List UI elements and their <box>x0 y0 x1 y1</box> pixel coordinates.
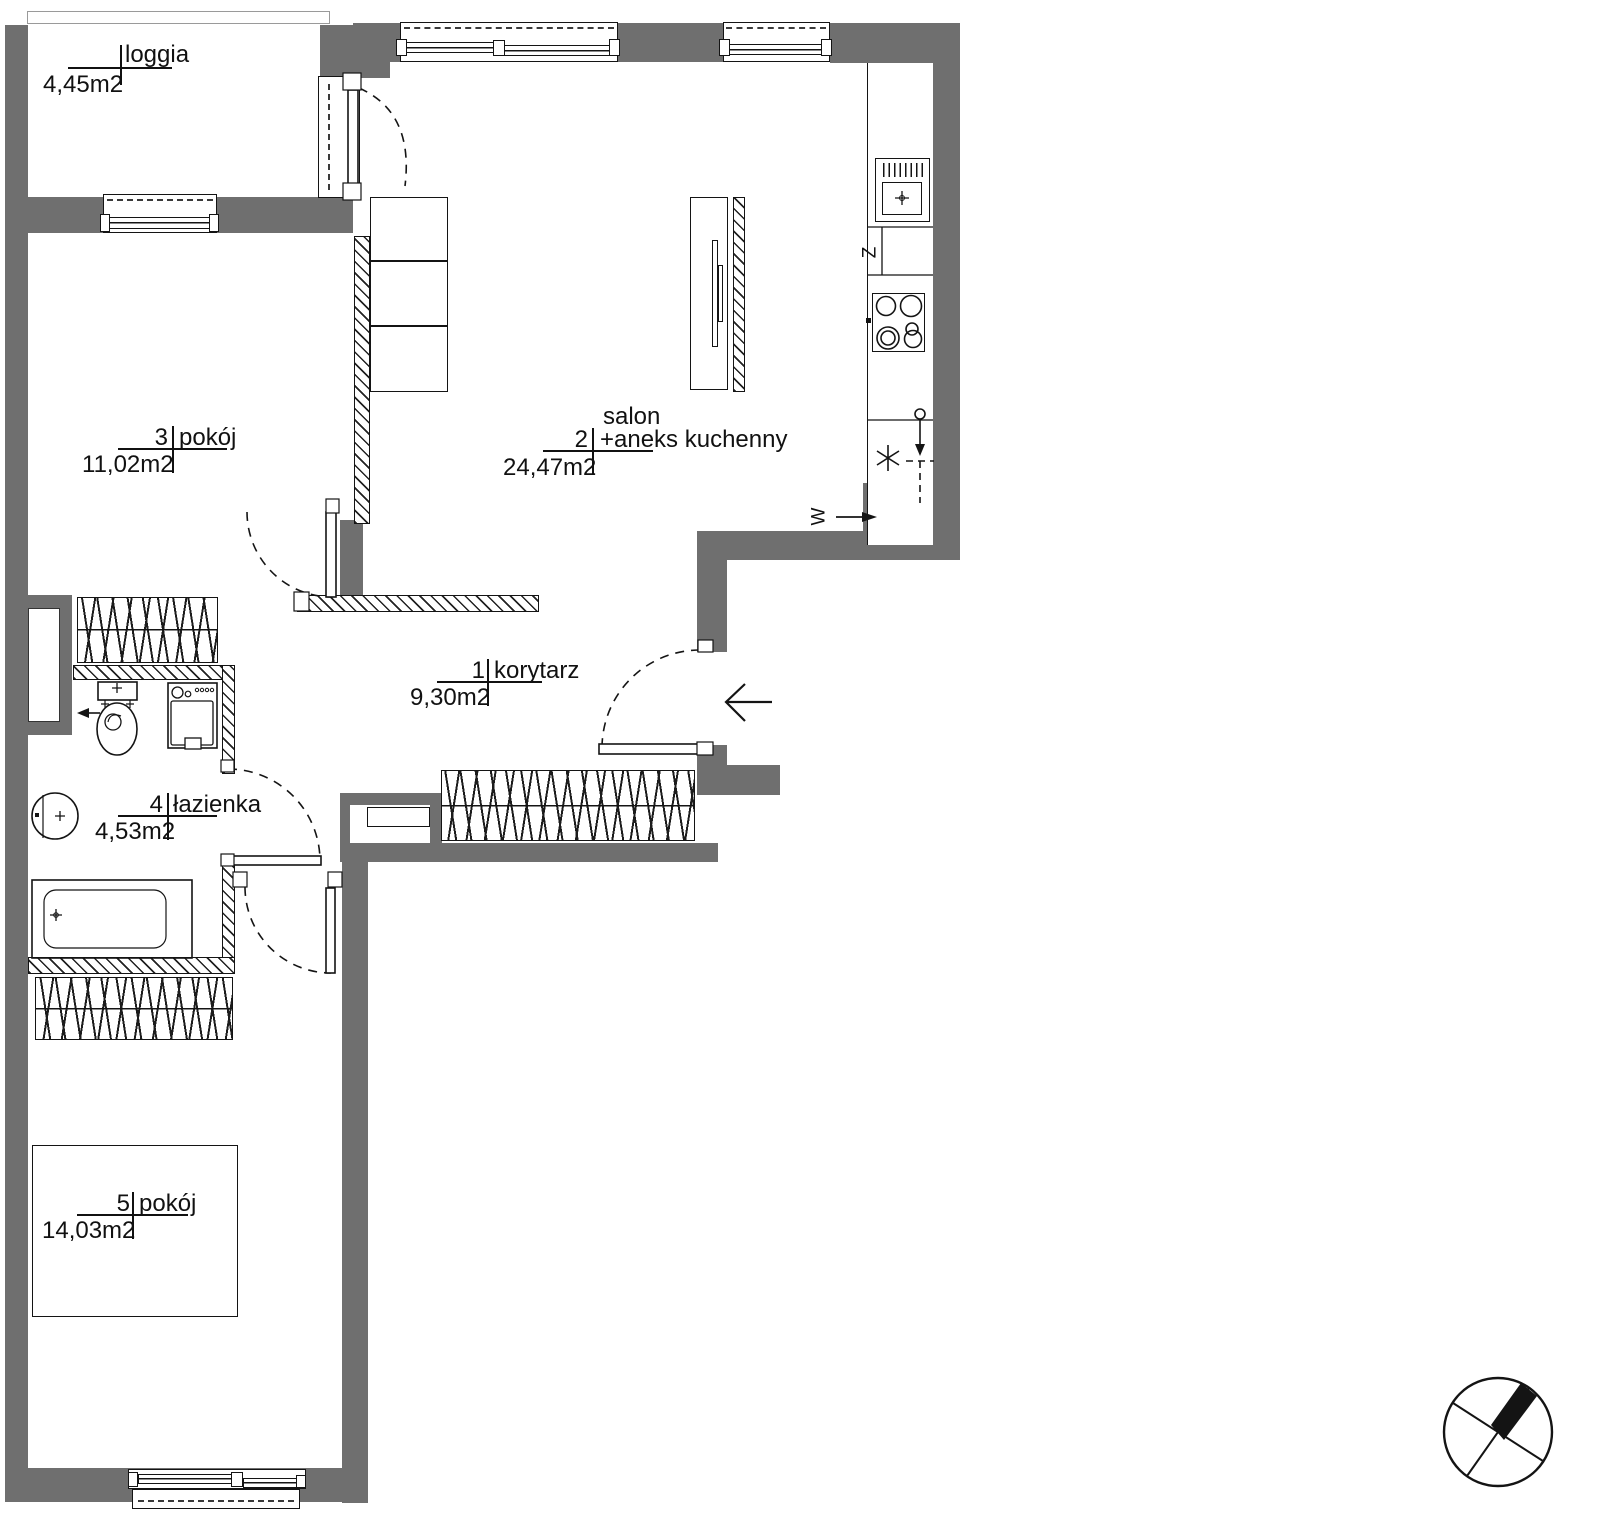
wall-left-outer <box>5 25 28 1502</box>
bathtub-faucet-icon <box>50 909 62 921</box>
window-salon-a-cap-left <box>396 39 407 56</box>
partition-bathroom-bottom <box>28 957 235 974</box>
room-number: 2 <box>558 428 588 452</box>
room-area: 4,45m2 <box>43 73 123 97</box>
room-label-lazienka: 4 łazienka 4,53m2 <box>90 789 265 849</box>
window-room5-glazing-1 <box>138 1474 238 1484</box>
door-arc-room5 <box>245 887 331 973</box>
partition-table-side <box>733 197 745 392</box>
door-arc-entry <box>602 650 700 748</box>
salon-cabinet-shelf-line <box>371 260 447 262</box>
toilet-drain <box>105 714 121 730</box>
room-area: 14,03m2 <box>42 1219 135 1243</box>
washing-machine-drum <box>171 701 213 745</box>
window-salon-b-cap-left <box>719 39 730 56</box>
washing-machine <box>168 683 217 748</box>
room-name: łazienka <box>173 793 261 817</box>
room-name: korytarz <box>494 659 579 683</box>
washing-machine-button <box>205 688 208 691</box>
wall-entry-stub-horizontal <box>697 765 780 795</box>
wardrobe-room5 <box>35 977 233 1040</box>
room-number: 3 <box>138 426 168 450</box>
washing-machine-knob-small <box>185 691 191 697</box>
compass-axis <box>1453 1403 1543 1461</box>
label-rule <box>118 448 227 450</box>
label-rule <box>118 815 217 817</box>
floor-plan: loggia 4,45m2 salon 2 +aneks kuchenny 24… <box>0 0 1608 1520</box>
wall-corridor-bottom <box>360 843 718 862</box>
window-room3-dash <box>107 199 213 201</box>
wall-salon-top-a <box>353 23 400 62</box>
wall-loggia-bottom-right <box>217 197 353 233</box>
dining-bench-short <box>718 265 723 322</box>
kitchen-stove <box>872 293 925 352</box>
window-room5-cap-mid <box>231 1472 243 1487</box>
bathroom-sink <box>32 793 78 839</box>
bathroom-sink-drain-dot <box>35 813 39 817</box>
room-number: 4 <box>135 793 163 817</box>
window-salon-a-dash <box>404 27 614 29</box>
room-label-pokoj3: 3 pokój 11,02m2 <box>80 422 250 482</box>
balcony-door-frame <box>318 76 360 198</box>
washing-machine-knob <box>172 687 183 698</box>
room-area: 24,47m2 <box>503 456 596 480</box>
window-room5-glazing-2 <box>243 1478 300 1488</box>
window-room3-cap-right <box>209 214 219 232</box>
door-leaf-room3 <box>326 512 336 597</box>
room-number: 1 <box>455 659 485 683</box>
room-name: loggia <box>125 43 189 67</box>
window-room3-glazing <box>107 217 213 229</box>
wall-room3-door-block <box>340 520 363 598</box>
window-room3-cap-left <box>100 214 110 232</box>
partition-room3-salon <box>354 236 370 524</box>
door-leaf-room5 <box>326 888 335 973</box>
window-salon-b-dash <box>726 27 826 29</box>
partition-bathroom-right-upper <box>222 665 235 774</box>
door-arc-balcony <box>359 88 406 186</box>
salon-cabinet-shelf-line <box>371 325 447 327</box>
window-room5-cap-right <box>296 1475 306 1488</box>
room-label-salon: salon 2 +aneks kuchenny 24,47m2 <box>500 402 790 482</box>
window-salon-a-glazing-1 <box>404 42 500 53</box>
label-rule <box>543 450 653 452</box>
label-rule <box>68 67 172 69</box>
room-label-korytarz: 1 korytarz 9,30m2 <box>400 655 590 715</box>
door-leaf-bathroom <box>228 856 321 865</box>
shaft-niche-left-wall <box>28 608 60 722</box>
door-jamb <box>326 499 339 513</box>
toilet-flow-arrow-icon <box>77 708 89 718</box>
label-rule <box>437 681 542 683</box>
room-label-loggia: loggia 4,45m2 <box>40 40 200 100</box>
door-leaf-entry <box>599 744 699 754</box>
dishwasher-symbol: Z <box>860 247 879 259</box>
compass-north-needle <box>1491 1383 1537 1440</box>
wall-right-kitchen <box>933 63 960 545</box>
toilet-drain-swirl <box>108 715 121 722</box>
room-area: 9,30m2 <box>410 686 490 710</box>
window-salon-a-cap-right <box>609 39 620 56</box>
partition-corridor-top <box>297 595 539 612</box>
compass-rose <box>1444 1378 1552 1486</box>
ventilation-symbol: W <box>809 508 828 526</box>
window-room5-sill-dash <box>138 1500 294 1502</box>
wall-top-right <box>830 23 960 63</box>
door-arc-room3 <box>247 512 332 597</box>
corridor-niche-shelf <box>367 807 430 827</box>
bathtub-inner <box>44 890 166 948</box>
toilet-mount-marks <box>101 700 134 708</box>
door-jamb <box>233 872 247 887</box>
loggia-railing <box>27 11 330 24</box>
toilet-valve-icon <box>112 683 122 693</box>
room-name: pokój <box>139 1192 196 1216</box>
washing-machine-button <box>200 688 203 691</box>
bathtub-drain <box>54 913 59 918</box>
bathtub <box>32 880 192 958</box>
wardrobe-room3 <box>77 597 218 663</box>
room-area: 11,02m2 <box>82 453 174 477</box>
washing-machine-button <box>195 688 198 691</box>
door-jamb <box>328 872 342 887</box>
kitchen-sink-drainer <box>883 163 923 177</box>
partition-bathroom-top <box>73 665 225 680</box>
balcony-door-fixed-dash <box>328 84 330 190</box>
kitchen-sink-bowl <box>882 182 922 215</box>
toilet-cistern <box>98 682 137 700</box>
room-name: +aneks kuchenny <box>600 428 787 452</box>
room-label-pokoj5: 5 pokój 14,03m2 <box>40 1188 210 1248</box>
label-rule <box>77 1214 188 1216</box>
window-room5-sill <box>132 1489 300 1509</box>
entrance-arrow-icon <box>726 684 772 721</box>
window-salon-a-cap-mid <box>493 40 505 56</box>
window-salon-b-glazing <box>727 44 825 55</box>
bathroom-sink-faucet-icon <box>55 811 65 821</box>
room-area: 4,53m2 <box>95 820 175 844</box>
washing-machine-button <box>210 688 213 691</box>
wall-between-windows <box>618 23 723 62</box>
room-number: 5 <box>100 1192 130 1216</box>
window-salon-b-cap-right <box>821 39 832 56</box>
washing-machine-filter <box>185 738 201 749</box>
window-salon-a-glazing-2 <box>500 45 612 56</box>
partition-bathroom-right-lower <box>222 858 235 972</box>
toilet-bowl <box>97 703 137 755</box>
compass-axis <box>1467 1388 1529 1476</box>
compass-circle <box>1444 1378 1552 1486</box>
window-room5-cap-left <box>128 1472 138 1487</box>
salon-cabinet <box>370 197 448 392</box>
wall-room5-right <box>342 843 368 1503</box>
wall-corridor-right <box>697 560 727 652</box>
wall-loggia-bottom-left <box>5 197 103 233</box>
wardrobe-corridor <box>441 770 695 841</box>
room-name: pokój <box>179 426 236 450</box>
